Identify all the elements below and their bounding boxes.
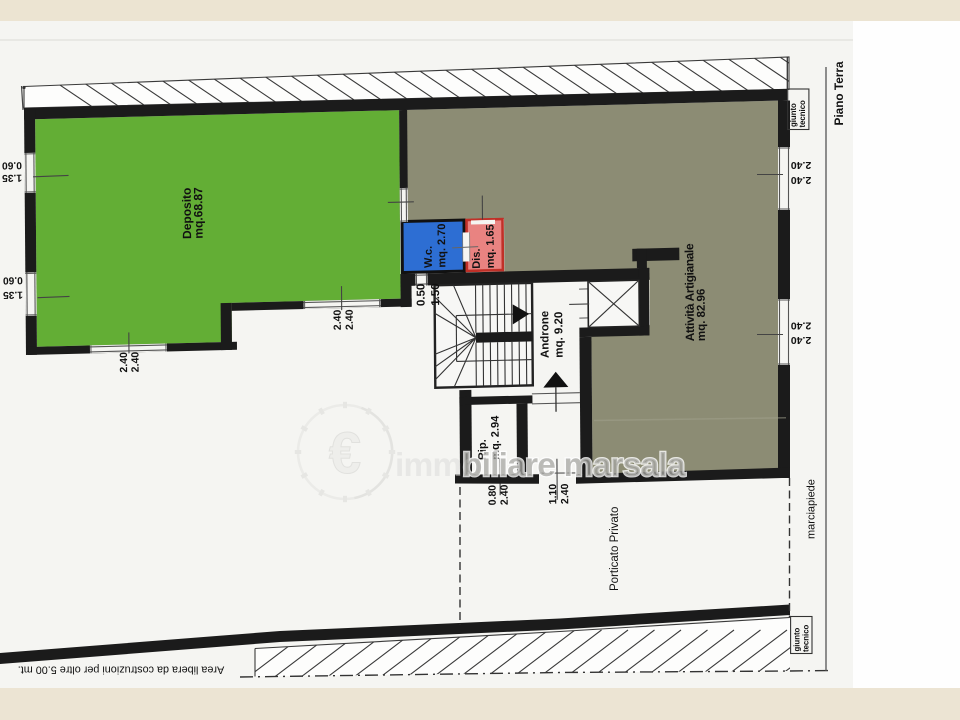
svg-text:W.c.: W.c. — [423, 246, 435, 268]
svg-text:0.60: 0.60 — [2, 159, 22, 171]
svg-text:0.60: 0.60 — [3, 274, 23, 286]
svg-text:2.40: 2.40 — [791, 159, 812, 171]
svg-text:mq. 2.70: mq. 2.70 — [436, 223, 448, 267]
svg-text:Piano Terra: Piano Terra — [832, 61, 846, 125]
svg-text:0.50: 0.50 — [415, 284, 427, 307]
svg-text:Porticato Privato: Porticato Privato — [609, 507, 621, 591]
svg-text:giunto: giunto — [793, 627, 802, 651]
svg-text:mq. 82.96: mq. 82.96 — [696, 289, 708, 342]
svg-text:2.40: 2.40 — [118, 352, 130, 373]
svg-text:mq. 1.65: mq. 1.65 — [485, 224, 497, 268]
svg-text:2.40: 2.40 — [559, 483, 571, 504]
svg-text:Androne: Androne — [539, 311, 551, 359]
svg-text:biliare marsala: biliare marsala — [462, 447, 686, 484]
svg-text:giunto: giunto — [789, 103, 798, 127]
svg-text:1.50: 1.50 — [430, 283, 442, 306]
svg-text:marciapiede: marciapiede — [806, 479, 818, 539]
svg-text:tecnico: tecnico — [798, 100, 807, 128]
svg-text:2.40: 2.40 — [129, 352, 141, 373]
svg-text:€: € — [329, 421, 361, 486]
svg-text:Area libera da costruzioni per: Area libera da costruzioni per oltre 5.0… — [18, 664, 224, 676]
svg-text:2.40: 2.40 — [332, 309, 344, 330]
svg-text:tecnico: tecnico — [802, 624, 811, 652]
svg-text:1.35: 1.35 — [3, 289, 23, 301]
svg-text:2.40: 2.40 — [791, 174, 812, 186]
svg-text:2.40: 2.40 — [344, 309, 356, 330]
svg-text:2.40: 2.40 — [791, 320, 812, 332]
svg-text:mq. 9.20: mq. 9.20 — [553, 311, 565, 357]
svg-text:mq.68.87: mq.68.87 — [191, 187, 205, 239]
svg-text:Dis.: Dis. — [471, 248, 483, 268]
svg-text:1.35: 1.35 — [2, 172, 22, 184]
svg-text:2.40: 2.40 — [499, 484, 511, 505]
svg-text:0.80: 0.80 — [487, 485, 499, 506]
svg-text:1.10: 1.10 — [547, 484, 559, 505]
svg-text:2.40: 2.40 — [791, 334, 812, 346]
